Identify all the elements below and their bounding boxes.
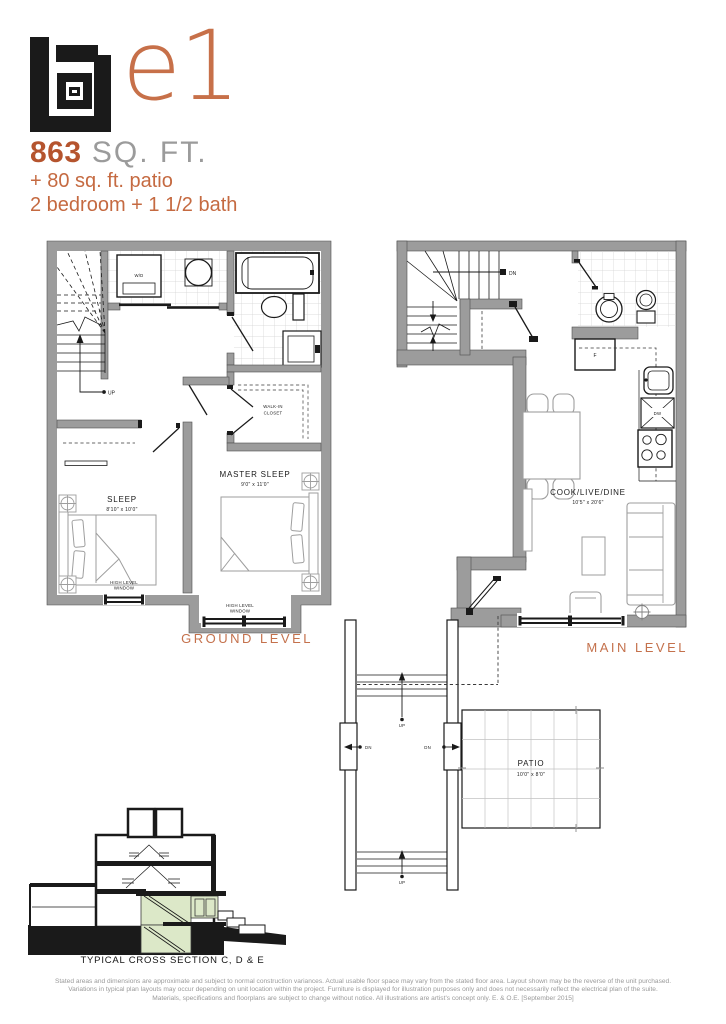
sleep-label: SLEEP bbox=[107, 495, 137, 504]
svg-text:CLOSET: CLOSET bbox=[264, 411, 283, 416]
master-dims: 9'0" x 11'0" bbox=[241, 482, 269, 488]
coffee-table bbox=[582, 537, 605, 575]
svg-text:WINDOW: WINDOW bbox=[114, 586, 135, 591]
upper-outline-dashed bbox=[357, 616, 498, 685]
stair-rails bbox=[340, 620, 461, 890]
master-bed bbox=[221, 493, 318, 575]
ground-mass bbox=[28, 925, 224, 955]
config-line: 2 bedroom + 1 1/2 bath bbox=[30, 194, 237, 217]
stove bbox=[638, 430, 672, 467]
svg-text:DN: DN bbox=[365, 745, 372, 750]
cross-section-label: TYPICAL CROSS SECTION C, D & E bbox=[50, 955, 295, 966]
disclaimer: Stated areas and dimensions are approxim… bbox=[0, 978, 726, 1003]
floorplan-page: e1 863 SQ. FT. + 80 sq. ft. patio 2 bedr… bbox=[0, 0, 726, 1024]
up-label: UP bbox=[108, 391, 116, 397]
up-arrow-bottom: UP bbox=[399, 850, 405, 885]
dw-label: DW bbox=[654, 411, 662, 416]
area-value: 863 bbox=[30, 136, 82, 169]
svg-text:UP: UP bbox=[399, 723, 405, 728]
bath-sink bbox=[283, 331, 321, 367]
kitchen-sink bbox=[644, 367, 673, 394]
powder-sink bbox=[637, 291, 656, 324]
exterior-stairs-patio: UP DN DN UP bbox=[338, 616, 606, 894]
disclaimer-line-1: Stated areas and dimensions are approxim… bbox=[0, 978, 726, 986]
left-wing bbox=[30, 883, 96, 927]
powder-room bbox=[574, 251, 676, 327]
patio-line: + 80 sq. ft. patio bbox=[30, 170, 173, 193]
svg-text:DN: DN bbox=[424, 745, 431, 750]
area-unit: SQ. FT. bbox=[82, 136, 208, 169]
ground-level-label: GROUND LEVEL bbox=[43, 631, 313, 646]
cook-live-dine-dims: 10'5" x 20'6" bbox=[572, 500, 603, 506]
svg-text:W/D: W/D bbox=[134, 273, 143, 278]
washer-dryer: W/D bbox=[117, 255, 161, 297]
disclaimer-line-3: Materials, specifications and floorplans… bbox=[0, 995, 726, 1003]
sleep-dims: 8'10" x 10'0" bbox=[106, 507, 137, 513]
area-line: 863 SQ. FT. bbox=[30, 136, 208, 170]
patio: PATIO 10'0" x 8'0" bbox=[458, 706, 604, 832]
up-arrow-top: UP bbox=[399, 672, 405, 728]
cook-live-dine-label: COOK/LIVE/DINE bbox=[550, 488, 626, 497]
fridge-label: F bbox=[593, 353, 596, 359]
laundry-tub bbox=[185, 259, 212, 286]
svg-text:HIGH LEVEL: HIGH LEVEL bbox=[110, 580, 138, 585]
disclaimer-line-2: Variations in typical plan layouts may o… bbox=[0, 986, 726, 994]
cross-section bbox=[28, 795, 286, 957]
patio-label: PATIO bbox=[518, 759, 545, 768]
main-level-plan: DN bbox=[393, 237, 690, 662]
brand-logo bbox=[30, 32, 130, 132]
svg-text:HIGH LEVEL: HIGH LEVEL bbox=[226, 603, 254, 608]
sofa bbox=[627, 503, 675, 605]
unit-name: e1 bbox=[122, 16, 238, 116]
patio-dims: 10'0" x 8'0" bbox=[517, 772, 545, 778]
dn-label: DN bbox=[509, 271, 517, 277]
svg-text:WALK-IN: WALK-IN bbox=[263, 404, 283, 409]
ground-level-plan: UP W/D bbox=[43, 237, 333, 635]
dishwasher: DW bbox=[641, 398, 674, 428]
svg-text:UP: UP bbox=[399, 880, 405, 885]
master-label: MASTER SLEEP bbox=[220, 470, 291, 479]
bathtub bbox=[236, 253, 319, 293]
svg-text:WINDOW: WINDOW bbox=[230, 609, 251, 614]
